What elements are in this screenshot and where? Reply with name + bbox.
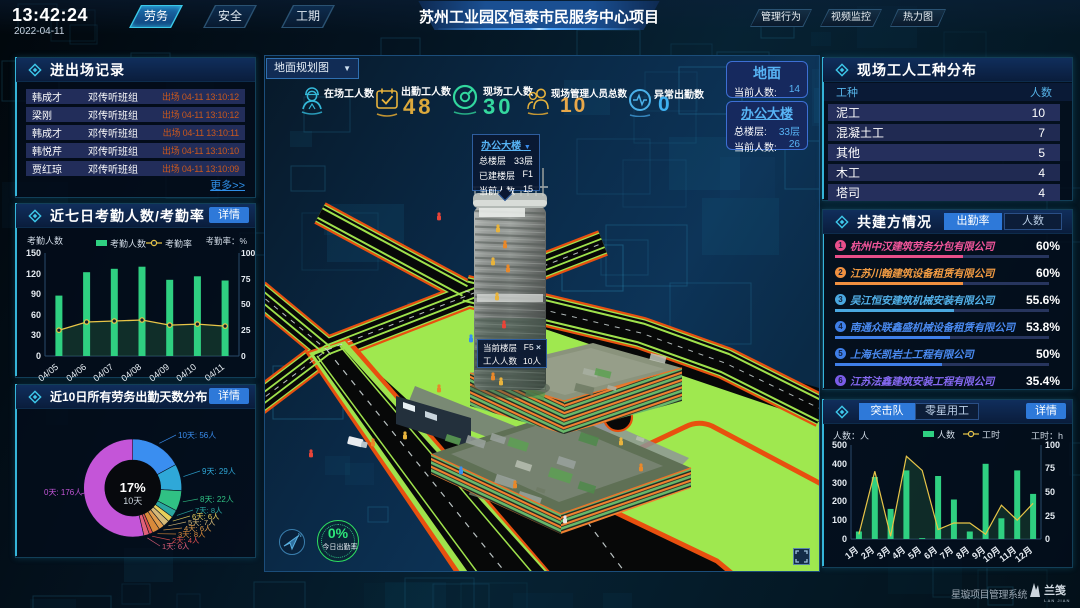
svg-text:N: N xyxy=(298,533,302,539)
svg-text:5月: 5月 xyxy=(906,545,923,562)
svg-text:25: 25 xyxy=(241,325,251,335)
svg-text:90: 90 xyxy=(31,289,41,299)
svg-text:9天: 29人: 9天: 29人 xyxy=(202,467,236,476)
svg-text:12月: 12月 xyxy=(1013,545,1034,565)
svg-text:300: 300 xyxy=(832,478,847,488)
svg-text:75: 75 xyxy=(1045,463,1055,473)
svg-text:1天: 6人: 1天: 6人 xyxy=(162,542,190,551)
svg-text:0: 0 xyxy=(1045,534,1050,544)
svg-text:120: 120 xyxy=(26,269,41,279)
svg-text:考勤率: 考勤率 xyxy=(165,238,192,249)
svg-text:60: 60 xyxy=(31,310,41,320)
svg-text:考勤人数: 考勤人数 xyxy=(110,238,146,249)
svg-text:8月: 8月 xyxy=(954,545,971,562)
svg-text:30: 30 xyxy=(31,330,41,340)
svg-text:0天: 176人: 0天: 176人 xyxy=(44,488,82,497)
svg-text:25: 25 xyxy=(1045,511,1055,521)
svg-text:200: 200 xyxy=(832,496,847,506)
svg-text:4月: 4月 xyxy=(890,545,907,562)
svg-text:150: 150 xyxy=(26,248,41,258)
svg-text:人数: 人数 xyxy=(937,429,955,440)
svg-text:工时: 工时 xyxy=(982,429,1000,440)
svg-text:50: 50 xyxy=(1045,487,1055,497)
svg-text:17%: 17% xyxy=(120,480,146,495)
svg-text:考勤人数: 考勤人数 xyxy=(27,235,63,246)
svg-text:0: 0 xyxy=(842,534,847,544)
svg-text:10天: 10天 xyxy=(123,496,142,506)
svg-text:6月: 6月 xyxy=(922,545,939,562)
svg-text:400: 400 xyxy=(832,459,847,469)
svg-text:10天: 56人: 10天: 56人 xyxy=(178,431,216,440)
svg-text:0: 0 xyxy=(36,351,41,361)
svg-text:50: 50 xyxy=(241,299,251,309)
svg-text:8天: 22人: 8天: 22人 xyxy=(200,495,234,504)
svg-text:500: 500 xyxy=(832,440,847,450)
svg-text:7月: 7月 xyxy=(938,545,955,562)
svg-text:100: 100 xyxy=(832,515,847,525)
svg-text:1月: 1月 xyxy=(843,545,860,562)
svg-text:考勤率：%: 考勤率：% xyxy=(205,236,247,246)
svg-text:100: 100 xyxy=(1045,440,1060,450)
svg-text:100: 100 xyxy=(241,248,255,258)
svg-text:0: 0 xyxy=(241,351,246,361)
svg-text:75: 75 xyxy=(241,274,251,284)
svg-text:2月: 2月 xyxy=(859,545,876,562)
